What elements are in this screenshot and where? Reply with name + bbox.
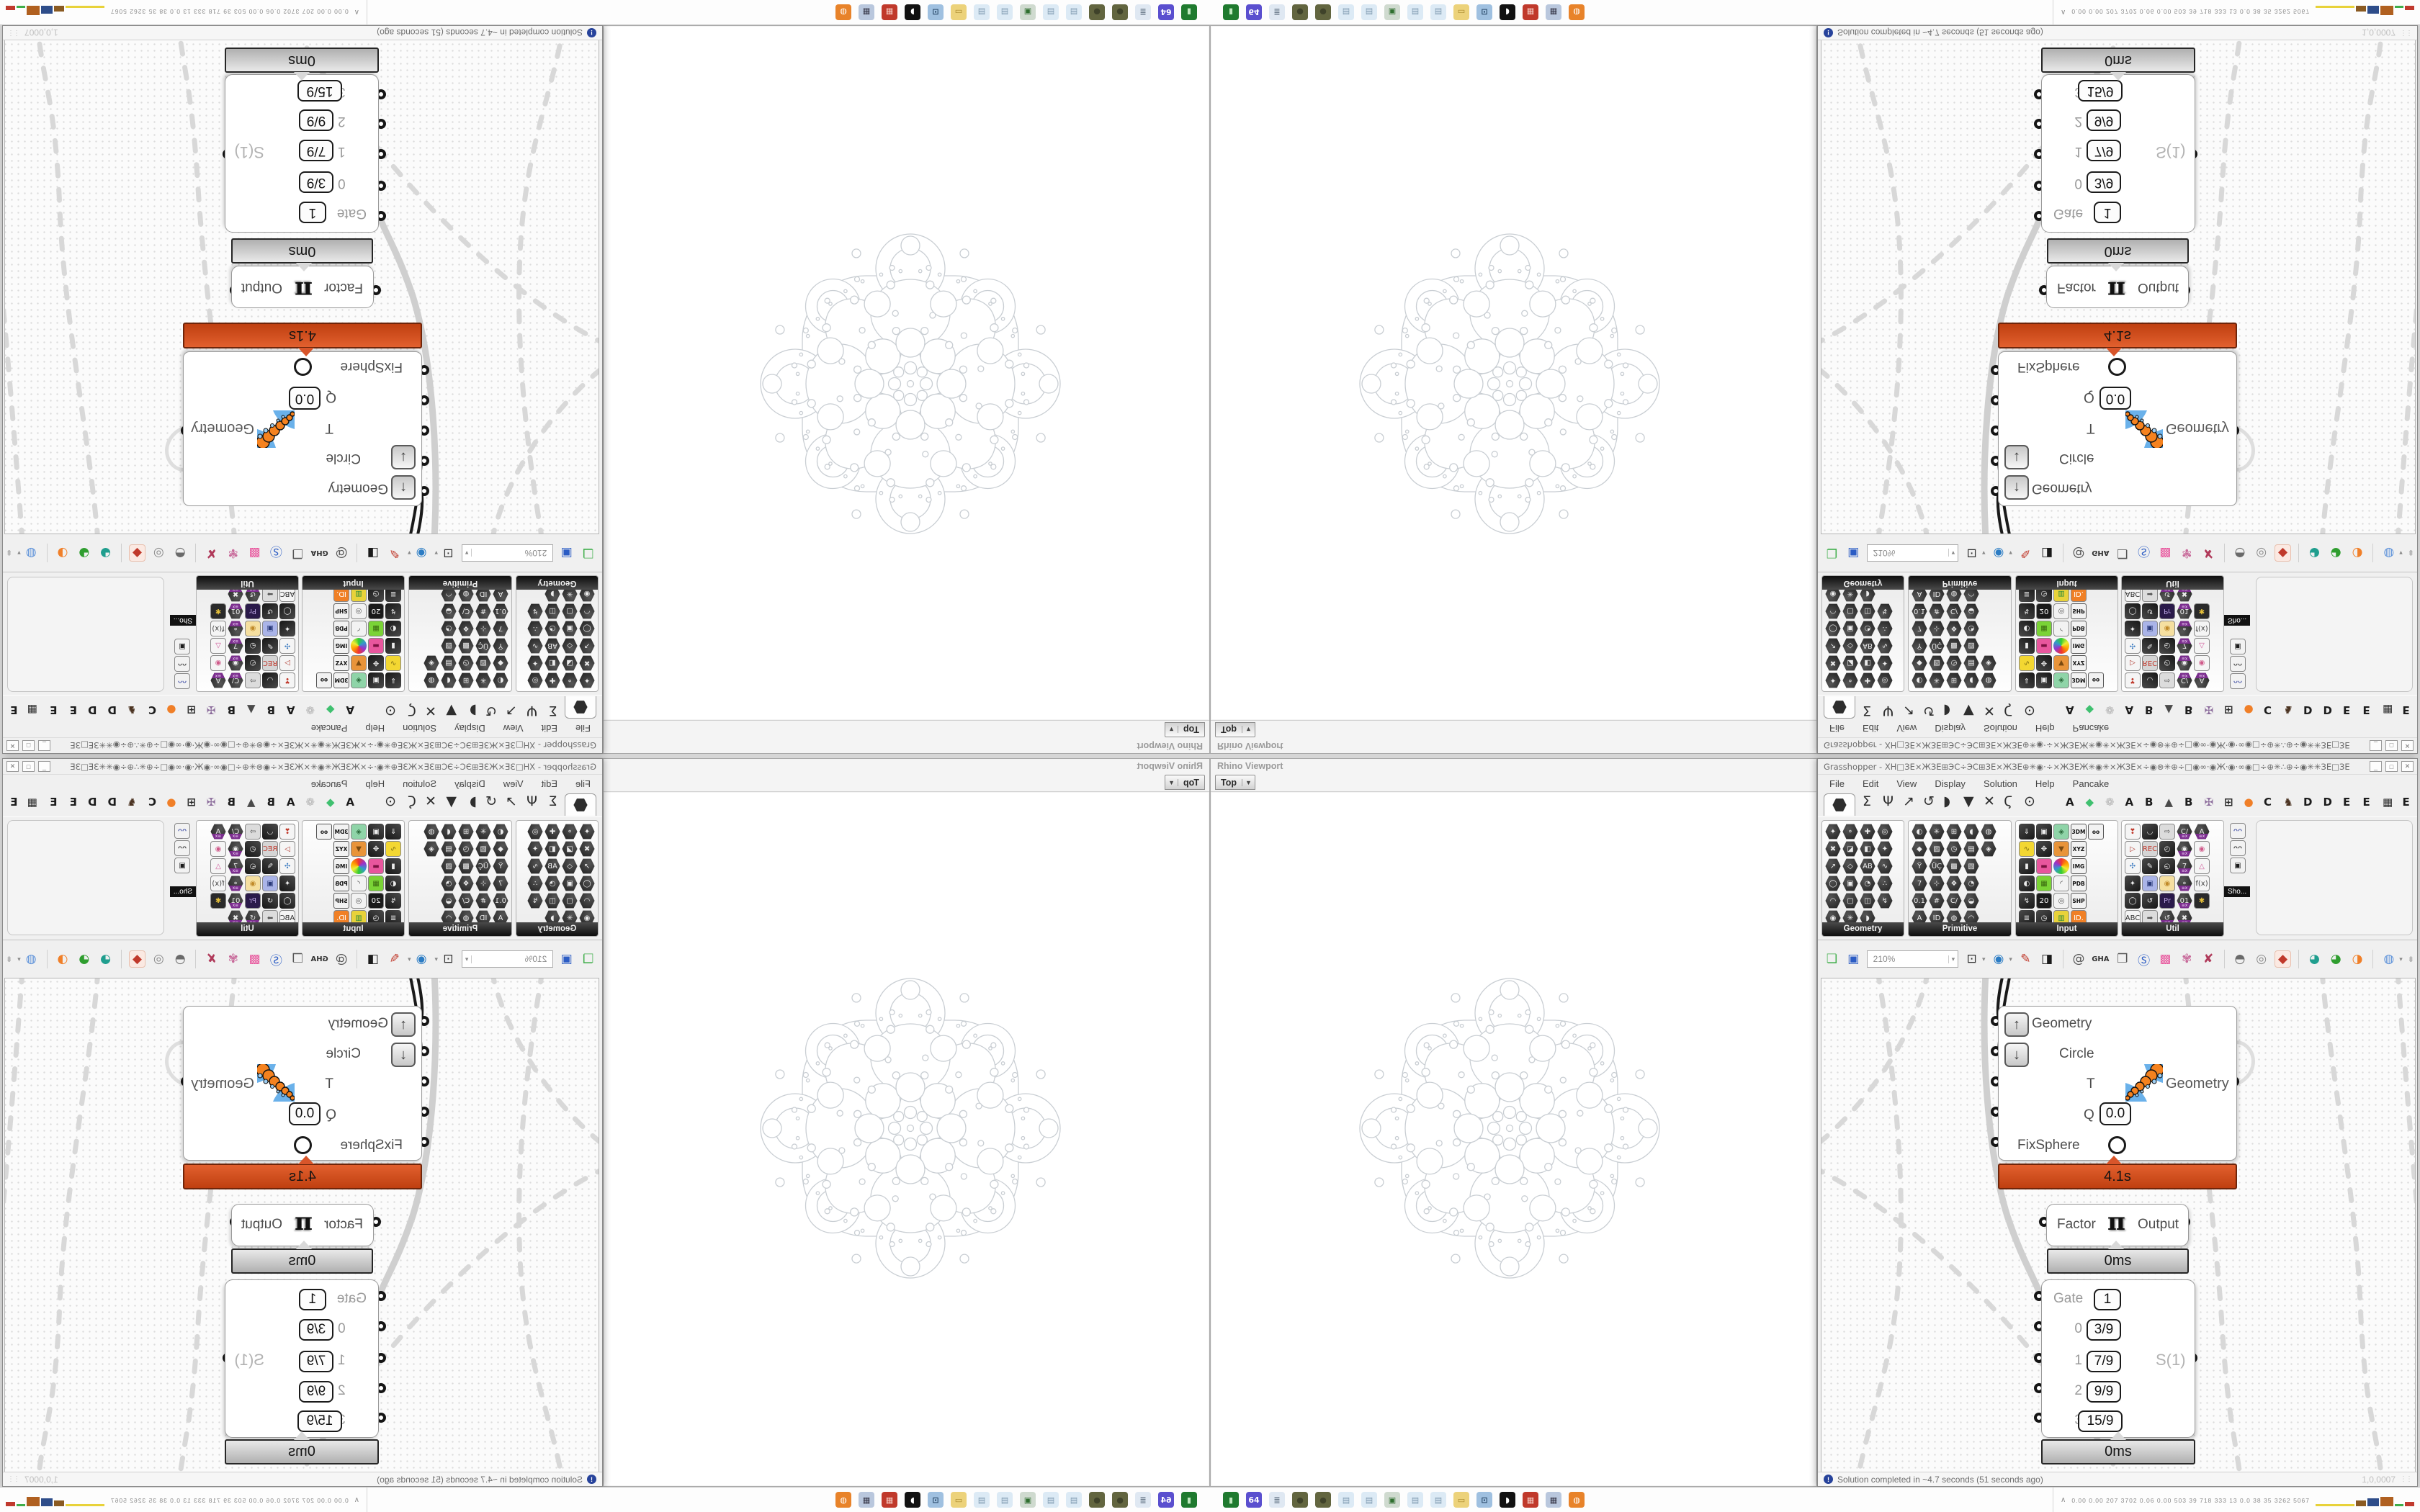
- component-icon[interactable]: ⊹: [1929, 876, 1945, 891]
- fixsphere-component[interactable]: ↑ Geometry ↓ Circle T Q 0.0 FixSphere Ge…: [1998, 1006, 2237, 1161]
- component-icon[interactable]: ᴖᴖ: [2230, 656, 2246, 672]
- zoom-extents-icon[interactable]: ⊡: [440, 544, 457, 562]
- menu-item-help[interactable]: Help: [365, 778, 385, 789]
- component-icon[interactable]: ▷: [2125, 655, 2141, 671]
- component-icon[interactable]: ∿: [1877, 638, 1893, 654]
- tab-curve[interactable]: ↺: [1923, 793, 1935, 809]
- cluster-open-icon[interactable]: ◓: [2231, 544, 2248, 562]
- component-icon[interactable]: ∴: [1877, 621, 1893, 636]
- plugin-tab-0[interactable]: A: [346, 796, 354, 809]
- plugin-tab-1[interactable]: ◆: [2086, 703, 2094, 716]
- plugin-tab-12[interactable]: D: [2303, 703, 2312, 716]
- galapagos-icon[interactable]: ✾: [2179, 950, 2195, 968]
- component-icon[interactable]: ◎: [351, 603, 367, 619]
- menu-item-pancake[interactable]: Pancake: [311, 724, 348, 734]
- plugin-tab-5[interactable]: ▲: [247, 703, 256, 716]
- component-icon[interactable]: ✱: [210, 603, 226, 619]
- slider-value-box[interactable]: 15/9: [2078, 80, 2123, 102]
- component-icon[interactable]: ▢: [1842, 893, 1858, 909]
- component-icon[interactable]: ▢: [562, 603, 578, 619]
- plugin-tab-7[interactable]: ✠: [207, 796, 216, 809]
- component-icon[interactable]: 01: [228, 603, 243, 619]
- component-icon[interactable]: ↗: [579, 858, 595, 874]
- component-icon[interactable]: ✱: [2194, 893, 2210, 909]
- component-icon[interactable]: ▤: [441, 655, 457, 671]
- component-icon[interactable]: ▮: [385, 858, 401, 874]
- menu-item-pancake[interactable]: Pancake: [2073, 724, 2110, 734]
- component-icon[interactable]: ◉: [245, 621, 261, 636]
- component-icon[interactable]: ❖: [1946, 876, 1962, 891]
- window-icon[interactable]: ❐: [290, 950, 306, 968]
- component-icon[interactable]: PDB: [333, 876, 349, 891]
- close-button[interactable]: ✕: [6, 740, 19, 751]
- menu-item-help[interactable]: Help: [2035, 724, 2055, 734]
- component-icon[interactable]: [2053, 638, 2069, 654]
- monitor-icon[interactable]: ▣: [1384, 1492, 1400, 1508]
- component-icon[interactable]: oo: [316, 824, 332, 840]
- component-icon[interactable]: ▷: [279, 655, 295, 671]
- component-icon[interactable]: ◖: [1963, 824, 1979, 840]
- sphere-orange-icon[interactable]: ◑: [55, 950, 71, 968]
- tab-vector[interactable]: ↗: [1903, 793, 1914, 809]
- menu-item-view[interactable]: View: [503, 724, 524, 734]
- component-icon[interactable]: ◉: [2177, 655, 2192, 671]
- maximize-button[interactable]: □: [22, 740, 35, 751]
- minimize-button[interactable]: _: [2370, 740, 2382, 751]
- floppy-64-icon[interactable]: 64: [1246, 1492, 1262, 1508]
- preview-eye-icon[interactable]: ◉: [413, 544, 430, 562]
- component-icon[interactable]: ▼: [351, 655, 367, 671]
- gem-red-icon[interactable]: ◆: [129, 950, 145, 968]
- component-icon[interactable]: 20: [368, 893, 384, 909]
- slider-value-box[interactable]: 9/9: [2087, 1381, 2121, 1403]
- menu-item-solution[interactable]: Solution: [1984, 724, 2017, 734]
- component-icon[interactable]: ↯: [385, 603, 401, 619]
- plugin-tab-15[interactable]: E: [2363, 703, 2370, 716]
- component-icon[interactable]: ↺: [2142, 893, 2158, 909]
- tab-transform[interactable]: Ϛ: [408, 793, 416, 809]
- gha-installer-icon[interactable]: GHA: [2092, 950, 2109, 968]
- component-icon[interactable]: ◵: [245, 638, 261, 654]
- component-icon[interactable]: ◴: [2159, 655, 2175, 671]
- sphere-blue-icon[interactable]: ◍: [2380, 950, 2397, 968]
- tab-maths[interactable]: Σ: [1863, 703, 1871, 719]
- component-icon[interactable]: ◒: [441, 893, 457, 909]
- component-icon[interactable]: ◫: [544, 893, 560, 909]
- slider-value-box[interactable]: 9/9: [2087, 109, 2121, 131]
- gh-canvas[interactable]: ↑ Geometry ↓ Circle T Q 0.0 FixSphere Ge…: [4, 39, 599, 534]
- arrow-up-button[interactable]: ↑: [391, 475, 416, 500]
- menu-item-edit[interactable]: Edit: [1863, 778, 1878, 789]
- component-icon[interactable]: ◠: [579, 603, 595, 619]
- plugin-tab-2[interactable]: ❁: [2105, 796, 2115, 809]
- component-icon[interactable]: ◈: [351, 824, 367, 840]
- tab-surface[interactable]: ◗: [470, 793, 477, 809]
- rhino-viewport-tab-top[interactable]: Top ▼: [1165, 775, 1205, 790]
- menu-item-file[interactable]: File: [1829, 778, 1845, 789]
- component-icon[interactable]: ▼: [351, 841, 367, 857]
- computer-icon[interactable]: ⊡: [928, 1492, 944, 1508]
- q-value-box[interactable]: 0.0: [289, 387, 321, 410]
- firefox-icon[interactable]: ◍: [1569, 4, 1585, 20]
- component-icon[interactable]: ⊞: [1946, 824, 1962, 840]
- arrow-down-button[interactable]: ↓: [2004, 445, 2029, 469]
- chevron-down-icon[interactable]: ▾: [434, 549, 438, 557]
- gh-canvas[interactable]: ↑ Geometry ↓ Circle T Q 0.0 FixSphere Ge…: [1821, 978, 2416, 1473]
- maximize-button[interactable]: □: [2385, 761, 2398, 772]
- component-icon[interactable]: ◈: [1981, 655, 1996, 671]
- component-icon[interactable]: ▣: [368, 824, 384, 840]
- component-icon[interactable]: ▷: [279, 841, 295, 857]
- floppy-64-icon[interactable]: 64: [1158, 1492, 1174, 1508]
- component-icon[interactable]: ÜÇ: [1929, 858, 1945, 874]
- component-icon[interactable]: △: [2194, 638, 2210, 654]
- component-icon[interactable]: ✦: [527, 655, 543, 671]
- component-icon[interactable]: ◐: [385, 876, 401, 891]
- component-icon[interactable]: ⚬: [1842, 824, 1858, 840]
- component-icon[interactable]: PDB: [2071, 621, 2087, 636]
- folder-icon[interactable]: ▭: [951, 1492, 967, 1508]
- orb-icon[interactable]: ●: [1292, 4, 1308, 20]
- zoom-level-box[interactable]: 210%▾: [1867, 544, 1959, 562]
- plugin-tab-13[interactable]: D: [88, 796, 97, 809]
- calculator-icon[interactable]: ▦: [1546, 1492, 1561, 1508]
- plugin-tab-10[interactable]: C: [148, 703, 156, 716]
- green-terminal-icon[interactable]: ▮: [1181, 1492, 1197, 1508]
- sketch-pen-icon[interactable]: ✎: [2017, 950, 2034, 968]
- component-icon[interactable]: ▣: [2142, 876, 2158, 891]
- component-icon[interactable]: ⚬: [562, 672, 578, 688]
- plugin-tab-11[interactable]: ♞: [2284, 796, 2293, 809]
- toolbar-overflow-icon[interactable]: ⇟: [2408, 549, 2414, 558]
- menu-item-view[interactable]: View: [1896, 724, 1917, 734]
- component-icon[interactable]: 20: [2036, 603, 2052, 619]
- component-icon[interactable]: ◈: [2053, 672, 2069, 688]
- plugin-tab-9[interactable]: ●: [2244, 703, 2254, 716]
- component-icon[interactable]: ◖: [441, 672, 457, 688]
- slider-value-box[interactable]: 3/9: [299, 171, 333, 193]
- component-icon[interactable]: ∿: [385, 655, 401, 671]
- remote-panel-icon[interactable]: @: [333, 950, 350, 968]
- plugin-tab-9[interactable]: ●: [2244, 796, 2254, 809]
- slider-value-box[interactable]: 7/9: [299, 1351, 333, 1372]
- folder-icon[interactable]: ▭: [1453, 4, 1469, 20]
- component-icon[interactable]: ✣: [279, 858, 295, 874]
- notepad-icon[interactable]: ▤: [1361, 1492, 1377, 1508]
- wire-display-icon[interactable]: ✘: [204, 544, 220, 562]
- component-icon[interactable]: ◴: [245, 841, 261, 857]
- component-icon[interactable]: ✣: [279, 638, 295, 654]
- plugin-tab-16[interactable]: ▦: [27, 703, 37, 716]
- document-icon[interactable]: ≣: [1269, 4, 1285, 20]
- component-icon[interactable]: ✚: [1860, 672, 1875, 688]
- galapagos-icon[interactable]: ✾: [2179, 544, 2195, 562]
- component-icon[interactable]: ◷: [458, 655, 474, 671]
- component-icon[interactable]: f(x): [210, 621, 226, 636]
- notepad-icon[interactable]: ▤: [1066, 1492, 1082, 1508]
- component-icon[interactable]: ◵: [2159, 858, 2175, 874]
- component-icon[interactable]: ▮: [385, 638, 401, 654]
- component-icon[interactable]: ✦: [1877, 655, 1893, 671]
- chevron-down-icon[interactable]: ▾: [2009, 549, 2012, 557]
- chevron-down-icon[interactable]: ▼: [1242, 726, 1255, 734]
- open-file-icon[interactable]: ❏: [1824, 544, 1840, 562]
- component-icon[interactable]: ↯: [527, 893, 543, 909]
- factor-pi-component[interactable]: Factor π Output: [231, 266, 374, 308]
- plugin-tab-15[interactable]: E: [50, 796, 57, 809]
- component-icon[interactable]: ◍: [423, 824, 439, 840]
- component-icon[interactable]: ↺: [262, 603, 278, 619]
- panel-label[interactable]: Geometry✦: [516, 922, 598, 936]
- component-icon[interactable]: C/: [458, 893, 474, 909]
- arrow-down-button[interactable]: ↓: [391, 445, 416, 469]
- component-icon[interactable]: ❣: [279, 672, 295, 688]
- remote-panel-icon[interactable]: @: [2071, 950, 2087, 968]
- tab-transform[interactable]: Ϛ: [2004, 703, 2012, 719]
- q-value-box[interactable]: 0.0: [289, 1102, 321, 1125]
- fixsphere-component[interactable]: ↑ Geometry ↓ Circle T Q 0.0 FixSphere Ge…: [183, 1006, 422, 1161]
- component-icon[interactable]: IMG: [2071, 638, 2087, 654]
- component-icon[interactable]: SHP: [333, 893, 349, 909]
- preview-eye-icon[interactable]: ◉: [413, 950, 430, 968]
- component-icon[interactable]: ◈: [423, 841, 439, 857]
- component-icon[interactable]: ∿: [385, 841, 401, 857]
- component-icon[interactable]: ✎: [262, 858, 278, 874]
- maximize-button[interactable]: □: [2385, 740, 2398, 751]
- component-icon[interactable]: ▣: [174, 639, 190, 654]
- plugin-tab-14[interactable]: E: [2343, 796, 2350, 809]
- component-icon[interactable]: ◫: [1860, 603, 1875, 619]
- orb-icon[interactable]: ●: [1315, 1492, 1331, 1508]
- component-icon[interactable]: ⇨: [2159, 824, 2175, 840]
- cluster-ring-icon[interactable]: ◎: [151, 950, 167, 968]
- component-icon[interactable]: 7: [2177, 638, 2192, 654]
- component-icon[interactable]: ◡: [2142, 824, 2158, 840]
- tab-curve[interactable]: ↺: [1923, 703, 1935, 719]
- component-icon[interactable]: ⊹: [475, 876, 491, 891]
- pin-green-icon[interactable]: ◕: [76, 950, 92, 968]
- component-icon[interactable]: ❖: [1946, 621, 1962, 636]
- arrow-up-button[interactable]: ↑: [391, 1012, 416, 1037]
- component-icon[interactable]: ◯: [279, 603, 295, 619]
- component-icon[interactable]: A: [210, 672, 226, 688]
- component-icon[interactable]: ✳: [1929, 672, 1945, 688]
- minimize-button[interactable]: _: [2370, 761, 2382, 772]
- component-icon[interactable]: ▣: [368, 672, 384, 688]
- component-icon[interactable]: ⇓: [2019, 824, 2035, 840]
- component-icon[interactable]: ↯: [385, 893, 401, 909]
- component-icon[interactable]: ❣: [2125, 824, 2141, 840]
- fixsphere-component[interactable]: ↑ Geometry ↓ Circle T Q 0.0 FixSphere Ge…: [1998, 351, 2237, 506]
- gh-canvas[interactable]: ↑ Geometry ↓ Circle T Q 0.0 FixSphere Ge…: [1821, 39, 2416, 534]
- component-icon[interactable]: 7: [1912, 876, 1927, 891]
- component-icon[interactable]: 7: [1912, 621, 1927, 636]
- component-icon[interactable]: ∴: [1877, 876, 1893, 891]
- notepad-icon[interactable]: ▤: [974, 4, 990, 20]
- plugin-tab-4[interactable]: B: [2145, 796, 2153, 809]
- panel-label[interactable]: Geometry✦: [1822, 922, 1904, 936]
- component-icon[interactable]: ◔: [441, 876, 457, 891]
- arrow-down-button[interactable]: ↓: [391, 1043, 416, 1067]
- package-icon[interactable]: ▩: [2157, 950, 2174, 968]
- component-icon[interactable]: #: [1929, 893, 1945, 909]
- tab-sets[interactable]: Ψ: [526, 703, 537, 719]
- slider-value-box[interactable]: 7/9: [2087, 140, 2121, 161]
- rhino-viewport-tab-top[interactable]: Top ▼: [1215, 722, 1255, 737]
- menu-item-view[interactable]: View: [1896, 778, 1917, 789]
- component-icon[interactable]: 0.1: [493, 893, 508, 909]
- monitor-icon[interactable]: ▣: [1020, 1492, 1036, 1508]
- orb-icon[interactable]: ●: [1089, 4, 1105, 20]
- component-icon[interactable]: ✚: [544, 672, 560, 688]
- component-icon[interactable]: C/: [228, 672, 243, 688]
- plugin-tab-6[interactable]: B: [228, 703, 236, 716]
- component-icon[interactable]: ◉: [210, 655, 226, 671]
- plugin-tab-1[interactable]: ◆: [326, 703, 335, 716]
- minimize-button[interactable]: _: [38, 761, 50, 772]
- component-icon[interactable]: ▧: [441, 858, 457, 874]
- component-icon[interactable]: ◎: [1877, 672, 1893, 688]
- resize-grip[interactable]: ⋮⋮: [2400, 1475, 2411, 1483]
- component-icon[interactable]: ◎: [2053, 603, 2069, 619]
- component-icon[interactable]: AB: [544, 858, 560, 874]
- fixsphere-toggle[interactable]: [2108, 358, 2126, 376]
- panel-label[interactable]: Util✦: [2122, 922, 2223, 936]
- component-icon[interactable]: ✦: [1877, 841, 1893, 857]
- red-cartridge-icon[interactable]: ▦: [1523, 1492, 1538, 1508]
- gh-titlebar[interactable]: Grasshopper - XH□ЗЕ×ЖЗЕ⊞ЭС÷ЭС⊞ЗЕ×ЖЗЕ⊕✳◉·…: [1818, 759, 2417, 775]
- component-icon[interactable]: ✥: [368, 841, 384, 857]
- component-icon[interactable]: ▣: [562, 876, 578, 891]
- plugin-tab-4[interactable]: B: [267, 796, 275, 809]
- menu-item-file[interactable]: File: [575, 724, 591, 734]
- panel-label[interactable]: Input✦: [2016, 922, 2117, 936]
- component-icon[interactable]: ⚬: [228, 876, 243, 891]
- component-icon[interactable]: ✖: [1825, 841, 1841, 857]
- panel-expand-icon[interactable]: ✦: [2106, 575, 2113, 576]
- tab-maths[interactable]: Σ: [549, 703, 557, 719]
- calculator-icon[interactable]: ▦: [859, 4, 874, 20]
- rhino-viewport-canvas[interactable]: [604, 27, 1209, 719]
- fixsphere-toggle[interactable]: [294, 358, 312, 376]
- slider-value-box[interactable]: 1: [2094, 1289, 2121, 1310]
- component-icon[interactable]: ÜÇ: [475, 858, 491, 874]
- component-icon[interactable]: 01: [228, 893, 243, 909]
- plugin-tab-10[interactable]: C: [2264, 703, 2272, 716]
- rhino-viewport-canvas[interactable]: [604, 793, 1209, 1485]
- component-icon[interactable]: ✳: [1929, 824, 1945, 840]
- panel-expand-icon[interactable]: ✦: [521, 575, 528, 576]
- tab-curve[interactable]: ↺: [485, 703, 497, 719]
- floppy-64-icon[interactable]: 64: [1158, 4, 1174, 20]
- plugin-tab-10[interactable]: C: [148, 796, 156, 809]
- finder-icon[interactable]: Ⓢ: [2136, 544, 2152, 562]
- sketch-pen-icon[interactable]: ✎: [386, 544, 403, 562]
- component-icon[interactable]: A: [2194, 672, 2210, 688]
- notepad-icon[interactable]: ▤: [1430, 1492, 1446, 1508]
- component-icon[interactable]: #: [1929, 603, 1945, 619]
- component-icon[interactable]: ▬: [2036, 638, 2052, 654]
- component-icon[interactable]: ◐: [1912, 824, 1927, 840]
- component-icon[interactable]: A: [210, 824, 226, 840]
- plugin-tab-9[interactable]: ●: [166, 796, 176, 809]
- component-icon[interactable]: Ÿ: [1912, 858, 1927, 874]
- component-icon[interactable]: ✣: [2125, 858, 2141, 874]
- finder-icon[interactable]: Ⓢ: [268, 544, 284, 562]
- component-icon[interactable]: [2053, 858, 2069, 874]
- component-icon[interactable]: ◧: [544, 841, 560, 857]
- preview-eye-icon[interactable]: ◉: [1991, 950, 2007, 968]
- panel-expand-icon[interactable]: ✦: [2212, 936, 2219, 937]
- panel-expand-icon[interactable]: ✦: [1999, 575, 2007, 576]
- maximize-button[interactable]: □: [22, 761, 35, 772]
- component-icon[interactable]: ◉: [2194, 841, 2210, 857]
- component-icon[interactable]: IMG: [2071, 858, 2087, 874]
- slider-value-box[interactable]: 9/9: [299, 1381, 333, 1403]
- component-icon[interactable]: ▩: [1946, 858, 1962, 874]
- component-icon[interactable]: ◪: [1842, 841, 1858, 857]
- plugin-tab-13[interactable]: D: [2323, 796, 2332, 809]
- orb-icon[interactable]: ●: [1112, 1492, 1128, 1508]
- component-icon[interactable]: ✖: [1825, 655, 1841, 671]
- green-terminal-icon[interactable]: ▮: [1223, 4, 1239, 20]
- component-icon[interactable]: ✦: [279, 876, 295, 891]
- component-icon[interactable]: ▤: [1963, 841, 1979, 857]
- component-icon[interactable]: ▣: [2036, 672, 2052, 688]
- plugin-tab-7[interactable]: ✠: [2205, 703, 2214, 716]
- chevron-down-icon[interactable]: ▾: [1948, 955, 1958, 963]
- toolbar-overflow-icon[interactable]: ⇟: [2408, 955, 2414, 964]
- component-icon[interactable]: C/: [228, 824, 243, 840]
- component-icon[interactable]: ᴖᴖ: [2230, 673, 2246, 689]
- factor-pi-component[interactable]: Factor π Output: [2046, 266, 2189, 308]
- tab-intersect[interactable]: ✕: [425, 703, 436, 719]
- component-icon[interactable]: ◧: [544, 655, 560, 671]
- camera-icon[interactable]: ◨: [364, 950, 381, 968]
- component-icon[interactable]: ◉: [2194, 655, 2210, 671]
- component-icon[interactable]: ◎: [2053, 893, 2069, 909]
- close-button[interactable]: ✕: [6, 761, 19, 772]
- floppy-64-icon[interactable]: 64: [1246, 4, 1262, 20]
- component-icon[interactable]: ◔: [544, 876, 560, 891]
- computer-icon[interactable]: ⊡: [1476, 4, 1492, 20]
- component-icon[interactable]: ᴖᴖ: [2230, 840, 2246, 856]
- component-icon[interactable]: 0.1: [1912, 893, 1927, 909]
- component-icon[interactable]: ▣: [562, 621, 578, 636]
- orb-icon[interactable]: ●: [1292, 1492, 1308, 1508]
- plugin-tab-15[interactable]: E: [50, 703, 57, 716]
- menu-item-display[interactable]: Display: [1935, 778, 1966, 789]
- component-icon[interactable]: ▦: [2036, 621, 2052, 636]
- component-icon[interactable]: ▣: [174, 858, 190, 873]
- plugin-tab-3[interactable]: A: [287, 796, 295, 809]
- component-icon[interactable]: C/: [2177, 672, 2192, 688]
- component-icon[interactable]: 01: [2177, 893, 2192, 909]
- package-icon[interactable]: ▩: [2157, 544, 2174, 562]
- component-icon[interactable]: 3DM: [333, 672, 349, 688]
- sketch-pen-icon[interactable]: ✎: [2017, 544, 2034, 562]
- component-icon[interactable]: ◍: [423, 672, 439, 688]
- component-icon[interactable]: ⚬: [2177, 876, 2192, 891]
- component-icon[interactable]: ✦: [2125, 621, 2141, 636]
- arrow-up-button[interactable]: ↑: [2004, 1012, 2029, 1037]
- pin-teal-icon[interactable]: ◕: [97, 950, 114, 968]
- plugin-tab-10[interactable]: C: [2264, 796, 2272, 809]
- sphere-blue-icon[interactable]: ◍: [23, 950, 40, 968]
- chevron-down-icon[interactable]: ▾: [2399, 955, 2403, 963]
- tab-intersect[interactable]: ✕: [1984, 793, 1995, 809]
- plugin-tab-17[interactable]: E: [2403, 796, 2410, 809]
